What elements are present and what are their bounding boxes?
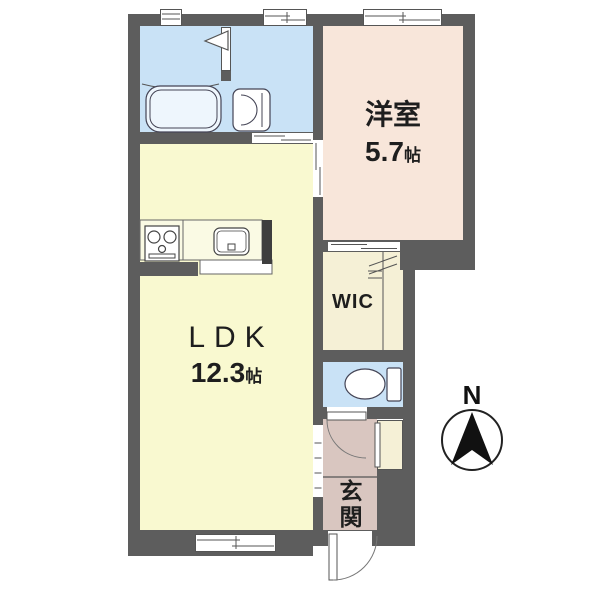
wall-left bbox=[128, 14, 140, 556]
window-ldk bbox=[195, 534, 276, 552]
washroom-sliding-door bbox=[252, 133, 313, 143]
wic-sliding-door bbox=[328, 242, 400, 251]
bedroom-sliding-door bbox=[313, 140, 323, 197]
wall-right-upper bbox=[463, 14, 475, 270]
bedroom-size-value: 5.7 bbox=[365, 136, 404, 167]
washroom-partition bbox=[221, 27, 231, 71]
ldk-size-value: 12.3 bbox=[191, 357, 246, 388]
bedroom-size-label: 5.7帖 bbox=[323, 138, 463, 166]
entrance-door-gap bbox=[328, 531, 372, 546]
wic-name-label: WIC bbox=[323, 292, 383, 312]
ldk-name-label: LDK bbox=[140, 323, 313, 353]
floor-plan: 洋室 5.7帖 LDK 12.3帖 WIC 玄関 N bbox=[0, 0, 600, 600]
hall-open-doorway bbox=[313, 425, 323, 497]
window-bedroom bbox=[363, 9, 442, 26]
wall-wic-bottom bbox=[313, 350, 415, 362]
compass-north-icon bbox=[442, 410, 502, 470]
entrance-name-label: 玄関 bbox=[337, 479, 360, 531]
wall-partition-stub bbox=[221, 71, 231, 81]
ldk-size-unit: 帖 bbox=[245, 367, 262, 386]
ldk-size-label: 12.3帖 bbox=[140, 359, 313, 387]
compass-north-label: N bbox=[458, 382, 486, 408]
bedroom-size-unit: 帖 bbox=[404, 146, 421, 165]
toilet-floor bbox=[323, 362, 403, 407]
entrance-closet-floor bbox=[377, 420, 403, 470]
toilet-door-gap bbox=[327, 407, 367, 419]
window-bath bbox=[160, 9, 182, 26]
wall-kitchen-stub bbox=[128, 262, 198, 276]
bedroom-name-label: 洋室 bbox=[323, 101, 463, 129]
bedroom-floor bbox=[323, 26, 463, 240]
window-washroom bbox=[263, 9, 307, 26]
